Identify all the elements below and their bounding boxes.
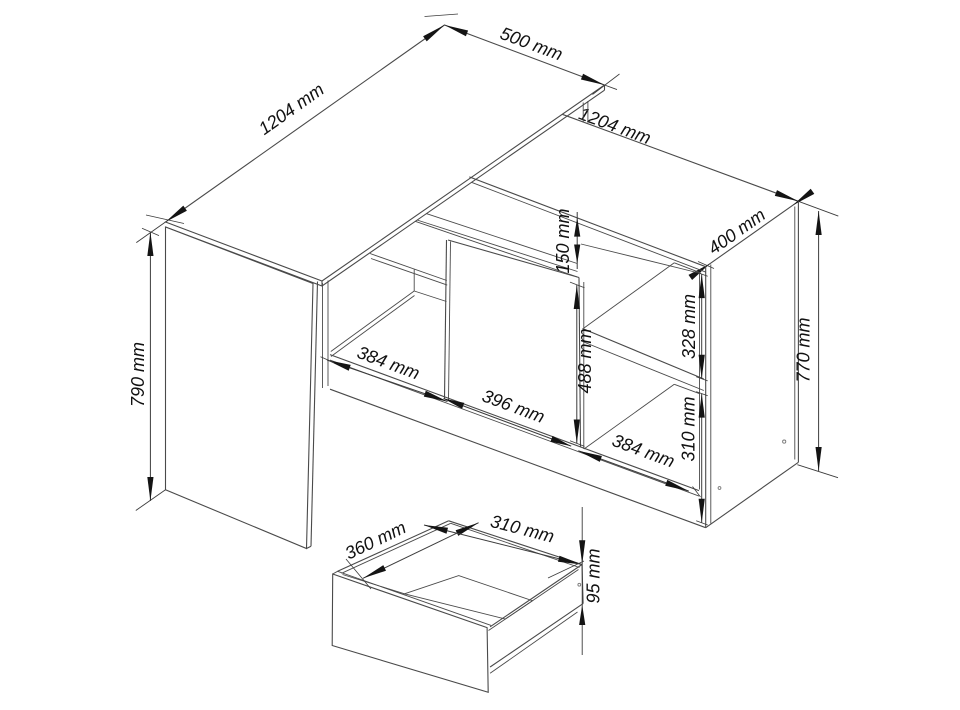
svg-text:770 mm: 770 mm: [793, 317, 813, 382]
svg-text:95 mm: 95 mm: [583, 548, 603, 603]
svg-text:488 mm: 488 mm: [575, 328, 595, 393]
svg-text:328 mm: 328 mm: [679, 294, 699, 359]
svg-text:790 mm: 790 mm: [128, 342, 148, 407]
svg-text:150 mm: 150 mm: [553, 208, 573, 273]
svg-text:310 mm: 310 mm: [678, 396, 698, 461]
